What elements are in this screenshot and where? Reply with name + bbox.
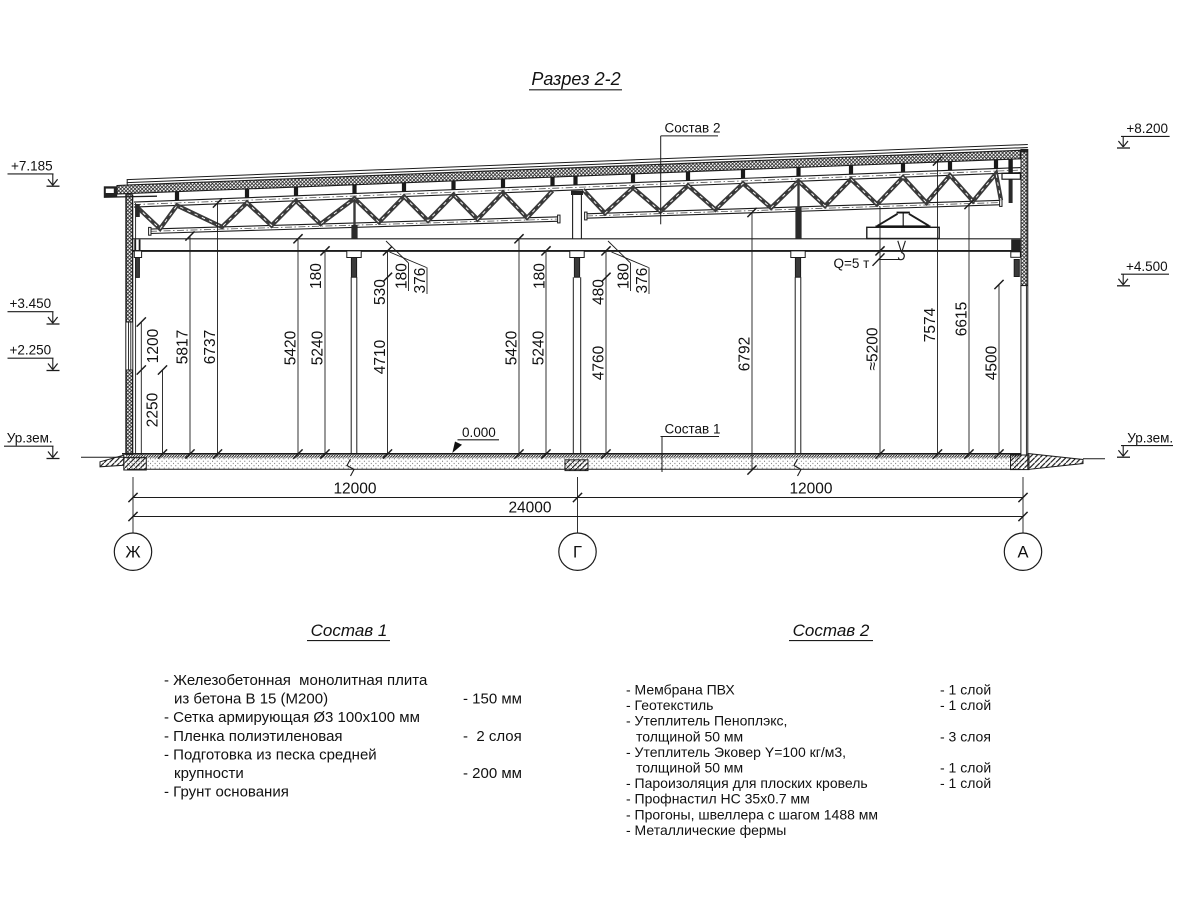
svg-text:5240: 5240 bbox=[531, 330, 548, 365]
svg-text:Состав 2: Состав 2 bbox=[665, 121, 721, 136]
svg-text:530: 530 bbox=[372, 279, 389, 305]
svg-text:- Утеплитель Эковер Y=100 кг/м: - Утеплитель Эковер Y=100 кг/м3, bbox=[626, 744, 846, 760]
svg-text:- 1 слой: - 1 слой bbox=[940, 697, 991, 713]
svg-text:- Утеплитель Пеноплэкс,: - Утеплитель Пеноплэкс, bbox=[626, 713, 787, 729]
svg-text:Ур.зем.: Ур.зем. bbox=[7, 431, 53, 446]
svg-text:А: А bbox=[1017, 544, 1028, 562]
svg-text:- Геотекстиль: - Геотекстиль bbox=[626, 697, 713, 713]
svg-text:2250: 2250 bbox=[145, 392, 162, 427]
svg-text:Г: Г bbox=[573, 544, 582, 562]
svg-text:Состав 2: Состав 2 bbox=[793, 621, 870, 640]
svg-text:крупности: крупности bbox=[174, 765, 244, 782]
svg-text:+4.500: +4.500 bbox=[1126, 259, 1168, 274]
svg-text:- Подготовка из песка средней: - Подготовка из песка средней bbox=[164, 746, 377, 763]
svg-text:Ур.зем.: Ур.зем. bbox=[1127, 430, 1173, 445]
svg-text:12000: 12000 bbox=[789, 481, 832, 498]
svg-text:4500: 4500 bbox=[984, 345, 1001, 380]
svg-text:180: 180 bbox=[308, 263, 325, 289]
svg-text:180: 180 bbox=[394, 263, 411, 289]
svg-text:из бетона В 15 (М200): из бетона В 15 (М200) bbox=[174, 691, 328, 708]
svg-text:6737: 6737 bbox=[202, 330, 219, 364]
svg-text:Разрез 2-2: Разрез 2-2 bbox=[531, 69, 620, 89]
svg-text:- Сетка армирующая Ø3 100х100: - Сетка армирующая Ø3 100х100 мм bbox=[164, 709, 420, 726]
svg-text:- 150 мм: - 150 мм bbox=[463, 691, 522, 708]
svg-text:376: 376 bbox=[412, 268, 429, 294]
svg-text:1200: 1200 bbox=[145, 328, 162, 363]
svg-text:5240: 5240 bbox=[310, 330, 327, 365]
svg-text:+3.450: +3.450 bbox=[10, 296, 52, 311]
svg-text:480: 480 bbox=[591, 279, 608, 305]
svg-text:- Металлические фермы: - Металлические фермы bbox=[626, 822, 786, 838]
svg-text:- 2 слоя: - 2 слоя bbox=[463, 728, 522, 745]
svg-text:5420: 5420 bbox=[283, 330, 300, 365]
svg-text:- Профнастил НС 35х0.7 мм: - Профнастил НС 35х0.7 мм bbox=[626, 791, 810, 807]
svg-text:- Прогоны, швеллера с шагом 14: - Прогоны, швеллера с шагом 1488 мм bbox=[626, 806, 878, 822]
svg-text:Q=5 т: Q=5 т bbox=[834, 256, 870, 271]
svg-text:≈5200: ≈5200 bbox=[865, 327, 882, 370]
svg-text:7574: 7574 bbox=[922, 307, 939, 342]
svg-text:- 1 слой: - 1 слой bbox=[940, 760, 991, 776]
svg-text:180: 180 bbox=[532, 263, 549, 289]
svg-text:толщиной 50 мм: толщиной 50 мм bbox=[636, 760, 743, 776]
svg-text:5420: 5420 bbox=[504, 330, 521, 365]
svg-text:- Пароизоляция для плоских кро: - Пароизоляция для плоских кровель bbox=[626, 775, 868, 791]
svg-text:Ж: Ж bbox=[125, 544, 141, 562]
svg-text:- 1 слой: - 1 слой bbox=[940, 775, 991, 791]
svg-text:- 3 слоя: - 3 слоя bbox=[940, 728, 991, 744]
svg-text:толщиной 50 мм: толщиной 50 мм bbox=[636, 728, 743, 744]
svg-text:+8.200: +8.200 bbox=[1126, 121, 1168, 136]
svg-text:+7.185: +7.185 bbox=[11, 158, 53, 173]
svg-text:4760: 4760 bbox=[591, 345, 608, 380]
svg-text:- Мембрана ПВХ: - Мембрана ПВХ bbox=[626, 682, 735, 698]
svg-text:+2.250: +2.250 bbox=[10, 343, 52, 358]
svg-text:6615: 6615 bbox=[954, 302, 971, 336]
svg-text:5817: 5817 bbox=[175, 330, 192, 364]
svg-text:12000: 12000 bbox=[333, 481, 376, 498]
svg-text:- Железобетонная монолитная п: - Железобетонная монолитная плита bbox=[164, 672, 428, 689]
svg-text:- 1 слой: - 1 слой bbox=[940, 682, 991, 698]
svg-text:Состав 1: Состав 1 bbox=[665, 421, 721, 436]
svg-text:- Грунт основания: - Грунт основания bbox=[164, 784, 289, 801]
svg-text:0.000: 0.000 bbox=[462, 425, 496, 440]
svg-text:24000: 24000 bbox=[508, 500, 551, 517]
svg-text:4710: 4710 bbox=[372, 339, 389, 374]
svg-text:- 200 мм: - 200 мм bbox=[463, 765, 522, 782]
svg-text:6792: 6792 bbox=[737, 337, 754, 371]
svg-text:- Пленка полиэтиленовая: - Пленка полиэтиленовая bbox=[164, 728, 343, 745]
svg-text:180: 180 bbox=[616, 263, 633, 289]
svg-text:376: 376 bbox=[634, 268, 651, 294]
svg-text:Состав 1: Состав 1 bbox=[311, 621, 388, 640]
